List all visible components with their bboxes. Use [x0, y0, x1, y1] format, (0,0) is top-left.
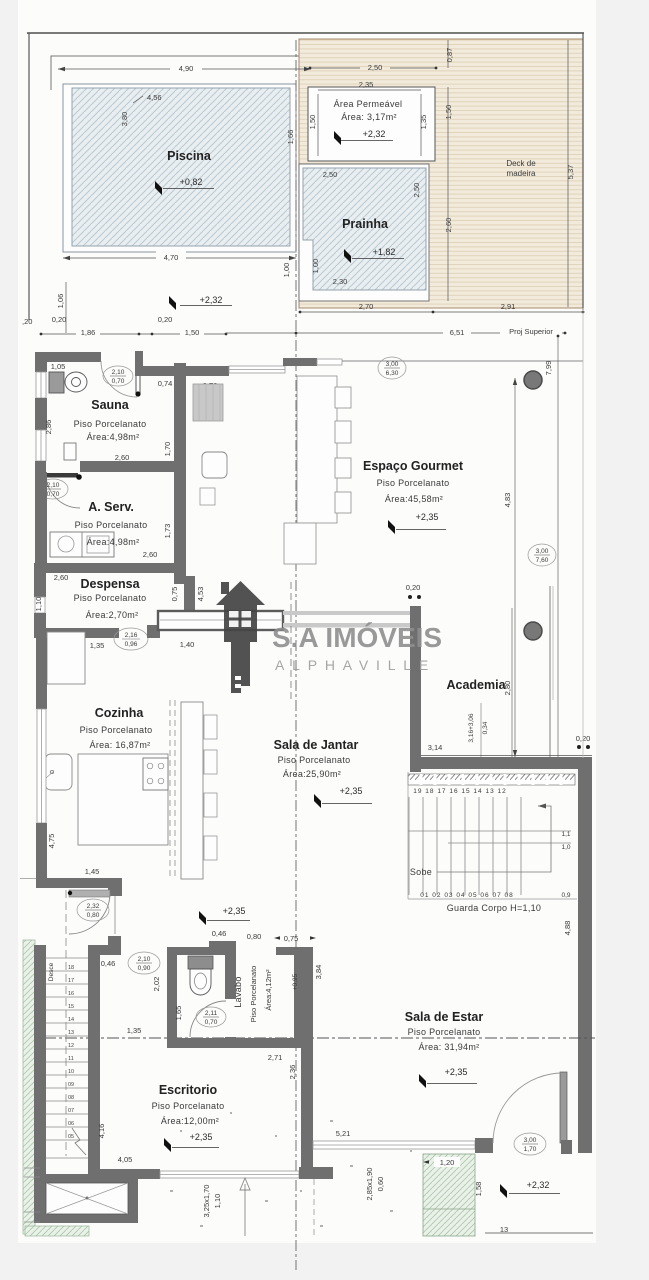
- svg-text:1,06: 1,06: [56, 294, 65, 309]
- svg-text:10: 10: [68, 1069, 74, 1075]
- svg-text:07: 07: [68, 1108, 74, 1114]
- svg-text:3,84: 3,84: [314, 965, 323, 980]
- svg-text:Área: 31,94m²: Área: 31,94m²: [419, 1042, 480, 1052]
- svg-text:09: 09: [68, 1082, 74, 1088]
- svg-text:1,58: 1,58: [474, 1182, 483, 1197]
- svg-text:05: 05: [68, 1134, 74, 1140]
- svg-text:Área Permeável: Área Permeável: [334, 99, 403, 109]
- svg-text:2,80: 2,80: [503, 681, 512, 696]
- svg-text:1,50: 1,50: [308, 115, 317, 130]
- svg-text:Área:4,98m²: Área:4,98m²: [87, 537, 140, 547]
- svg-text:Área:25,90m²: Área:25,90m²: [283, 769, 341, 779]
- svg-text:Proj Superior: Proj Superior: [509, 327, 553, 336]
- svg-text:Área:4,98m²: Área:4,98m²: [87, 432, 140, 442]
- svg-text:Prainha: Prainha: [342, 217, 389, 231]
- svg-text:2,91: 2,91: [501, 302, 516, 311]
- svg-text:madeira: madeira: [507, 169, 536, 178]
- svg-text:Despensa: Despensa: [80, 577, 140, 591]
- svg-text:1,10: 1,10: [34, 597, 43, 612]
- svg-text:0,9: 0,9: [561, 892, 570, 899]
- svg-text:Piso Porcelanato: Piso Porcelanato: [377, 478, 450, 488]
- svg-text:1,66: 1,66: [286, 130, 295, 145]
- svg-text:Piso Porcelanato: Piso Porcelanato: [74, 593, 147, 603]
- svg-text:Academia: Academia: [446, 678, 506, 692]
- svg-text:3,00: 3,00: [386, 361, 399, 368]
- svg-text:3,00: 3,00: [536, 548, 549, 555]
- svg-text:A. Serv.: A. Serv.: [88, 500, 134, 514]
- svg-text:1,05: 1,05: [51, 362, 66, 371]
- svg-text:Lavabo: Lavabo: [233, 976, 243, 1007]
- svg-text:+2,35: +2,35: [223, 906, 246, 916]
- svg-text:Área:2,70m²: Área:2,70m²: [86, 610, 139, 620]
- svg-text:08: 08: [68, 1095, 74, 1101]
- svg-text:0,70: 0,70: [112, 378, 125, 385]
- svg-text:4,16: 4,16: [97, 1124, 106, 1139]
- svg-text:3,00: 3,00: [524, 1137, 537, 1144]
- svg-text:4,88: 4,88: [563, 921, 572, 936]
- svg-text:1,0: 1,0: [561, 844, 570, 851]
- svg-text:+0,95: +0,95: [292, 973, 299, 990]
- svg-text:5,37: 5,37: [566, 165, 575, 180]
- svg-text:06: 06: [68, 1121, 74, 1127]
- svg-text:18: 18: [68, 965, 74, 971]
- svg-text:Área: 3,17m²: Área: 3,17m²: [341, 112, 397, 122]
- svg-text:1,00: 1,00: [282, 263, 291, 278]
- svg-text:Cozinha: Cozinha: [95, 706, 145, 720]
- svg-text:2,16: 2,16: [125, 632, 138, 639]
- svg-text:0,34: 0,34: [482, 721, 489, 734]
- svg-text:0,80: 0,80: [87, 912, 100, 919]
- svg-text:1,35: 1,35: [90, 641, 105, 650]
- svg-text:+2,32: +2,32: [363, 129, 386, 139]
- svg-text:3,25x1,70: 3,25x1,70: [202, 1185, 211, 1218]
- svg-text:Piso Porcelanato: Piso Porcelanato: [408, 1027, 481, 1037]
- svg-text:1,73: 1,73: [163, 524, 172, 539]
- svg-text:0,20: 0,20: [52, 315, 67, 324]
- svg-text:Piso Porcelanato: Piso Porcelanato: [80, 725, 153, 735]
- svg-text:12: 12: [68, 1043, 74, 1049]
- svg-text:1,70: 1,70: [524, 1146, 537, 1153]
- svg-text:01 02 03 04 05 06 07 08: 01 02 03 04 05 06 07 08: [420, 892, 513, 899]
- svg-text:1,10: 1,10: [213, 1194, 222, 1209]
- svg-text:2,10: 2,10: [47, 482, 60, 489]
- svg-text:2,35: 2,35: [359, 80, 374, 89]
- svg-text:0,87: 0,87: [445, 48, 454, 63]
- svg-text:Área:4,12m²: Área:4,12m²: [264, 969, 273, 1011]
- svg-text:1,35: 1,35: [127, 1026, 142, 1035]
- svg-text:1,86: 1,86: [81, 328, 96, 337]
- svg-text:2,30: 2,30: [333, 277, 348, 286]
- svg-text:0,75: 0,75: [170, 587, 179, 602]
- svg-text:Área: 16,87m²: Área: 16,87m²: [90, 740, 151, 750]
- svg-text:19 18 17 16 15 14 13 12: 19 18 17 16 15 14 13 12: [413, 788, 506, 795]
- svg-text:2,70: 2,70: [359, 302, 374, 311]
- svg-text:3,16+3,06: 3,16+3,06: [468, 713, 475, 742]
- svg-text:Piso Porcelanato: Piso Porcelanato: [74, 419, 147, 429]
- svg-text:S.A IMÓVEIS: S.A IMÓVEIS: [272, 622, 442, 653]
- svg-text:0,74: 0,74: [158, 379, 173, 388]
- svg-text:,20: ,20: [22, 317, 32, 326]
- svg-text:Sala de Jantar: Sala de Jantar: [274, 738, 359, 752]
- svg-text:1,1: 1,1: [561, 831, 570, 838]
- svg-text:4,83: 4,83: [503, 493, 512, 508]
- svg-text:3,14: 3,14: [428, 743, 443, 752]
- svg-text:Piso Porcelanato: Piso Porcelanato: [278, 755, 351, 765]
- svg-text:0,70: 0,70: [47, 491, 60, 498]
- svg-text:13: 13: [68, 1030, 74, 1036]
- svg-text:7,60: 7,60: [536, 557, 549, 564]
- svg-text:+2,32: +2,32: [200, 295, 223, 305]
- svg-text:2,11: 2,11: [205, 1010, 218, 1017]
- svg-text:0,46: 0,46: [212, 929, 227, 938]
- svg-text:1,45: 1,45: [85, 867, 100, 876]
- svg-text:2,32: 2,32: [87, 903, 100, 910]
- svg-text:Desce: Desce: [48, 962, 55, 981]
- svg-text:6,51: 6,51: [450, 328, 465, 337]
- svg-text:2,10: 2,10: [112, 369, 125, 376]
- svg-text:2,85x1,90: 2,85x1,90: [365, 1168, 374, 1201]
- svg-text:Piso Porcelanato: Piso Porcelanato: [249, 966, 258, 1023]
- svg-text:0,96: 0,96: [125, 641, 138, 648]
- svg-text:1,70: 1,70: [163, 442, 172, 457]
- svg-text:4,90: 4,90: [179, 64, 194, 73]
- svg-text:0,70: 0,70: [205, 1019, 218, 1026]
- svg-text:1,50: 1,50: [444, 105, 453, 120]
- svg-text:Piscina: Piscina: [167, 149, 212, 163]
- svg-text:2,60: 2,60: [115, 453, 130, 462]
- svg-text:14: 14: [68, 1017, 74, 1023]
- svg-text:0,60: 0,60: [376, 1177, 385, 1192]
- svg-text:2,60: 2,60: [54, 573, 69, 582]
- svg-text:2,50: 2,50: [323, 170, 338, 179]
- svg-text:4,56: 4,56: [147, 93, 162, 102]
- svg-text:+2,35: +2,35: [340, 786, 363, 796]
- svg-text:4,75: 4,75: [47, 834, 56, 849]
- svg-text:2,50: 2,50: [368, 63, 383, 72]
- svg-text:1,00: 1,00: [311, 259, 320, 274]
- svg-text:Espaço Gourmet: Espaço Gourmet: [363, 459, 464, 473]
- svg-text:11: 11: [68, 1056, 74, 1062]
- svg-text:4,70: 4,70: [164, 253, 179, 262]
- svg-text:1,20: 1,20: [440, 1158, 455, 1167]
- svg-text:0,20: 0,20: [406, 583, 421, 592]
- svg-text:4,05: 4,05: [118, 1155, 133, 1164]
- svg-text:+2,35: +2,35: [416, 512, 439, 522]
- svg-text:3,80: 3,80: [120, 112, 129, 127]
- svg-text:2,10: 2,10: [138, 956, 151, 963]
- svg-text:16: 16: [68, 991, 74, 997]
- svg-text:2,02: 2,02: [152, 977, 161, 992]
- svg-text:2,50: 2,50: [412, 183, 421, 198]
- svg-text:Área:45,58m²: Área:45,58m²: [385, 494, 443, 504]
- svg-text:Sala de Estar: Sala de Estar: [405, 1010, 484, 1024]
- svg-text:Piso Porcelanato: Piso Porcelanato: [75, 520, 148, 530]
- svg-text:0,46: 0,46: [101, 959, 116, 968]
- svg-text:0,90: 0,90: [138, 965, 151, 972]
- svg-text:ALPHAVILLE: ALPHAVILLE: [275, 657, 436, 673]
- svg-text:0,75: 0,75: [284, 934, 299, 943]
- svg-text:Guarda Corpo H=1,10: Guarda Corpo H=1,10: [447, 903, 542, 913]
- svg-text:1,40: 1,40: [180, 640, 195, 649]
- svg-text:Sauna: Sauna: [91, 398, 130, 412]
- svg-text:Escritorio: Escritorio: [159, 1083, 218, 1097]
- svg-text:5,21: 5,21: [336, 1129, 351, 1138]
- svg-text:17: 17: [68, 978, 74, 984]
- svg-text:+2,35: +2,35: [445, 1067, 468, 1077]
- svg-text:1,65: 1,65: [174, 1006, 183, 1021]
- svg-text:+2,35: +2,35: [190, 1132, 213, 1142]
- svg-text:Deck de: Deck de: [506, 159, 536, 168]
- svg-text:4,53: 4,53: [196, 587, 205, 602]
- svg-text:1,35: 1,35: [419, 115, 428, 130]
- svg-text:2,36: 2,36: [288, 1065, 297, 1080]
- svg-text:2,86: 2,86: [44, 420, 53, 435]
- svg-text:+0,82: +0,82: [180, 177, 203, 187]
- svg-text:2,71: 2,71: [268, 1053, 283, 1062]
- svg-text:6,30: 6,30: [386, 370, 399, 377]
- svg-text:Sobe: Sobe: [410, 867, 432, 877]
- svg-text:Piso Porcelanato: Piso Porcelanato: [152, 1101, 225, 1111]
- svg-text:2,60: 2,60: [143, 550, 158, 559]
- svg-text:+2,32: +2,32: [527, 1180, 550, 1190]
- svg-text:0,80: 0,80: [247, 932, 262, 941]
- svg-text:15: 15: [68, 1004, 74, 1010]
- svg-text:7,99: 7,99: [544, 361, 553, 376]
- svg-text:+1,82: +1,82: [373, 247, 396, 257]
- svg-text:1,50: 1,50: [185, 328, 200, 337]
- svg-text:0,20: 0,20: [158, 315, 173, 324]
- svg-text:2,60: 2,60: [444, 218, 453, 233]
- svg-text:Área:12,00m²: Área:12,00m²: [161, 1116, 219, 1126]
